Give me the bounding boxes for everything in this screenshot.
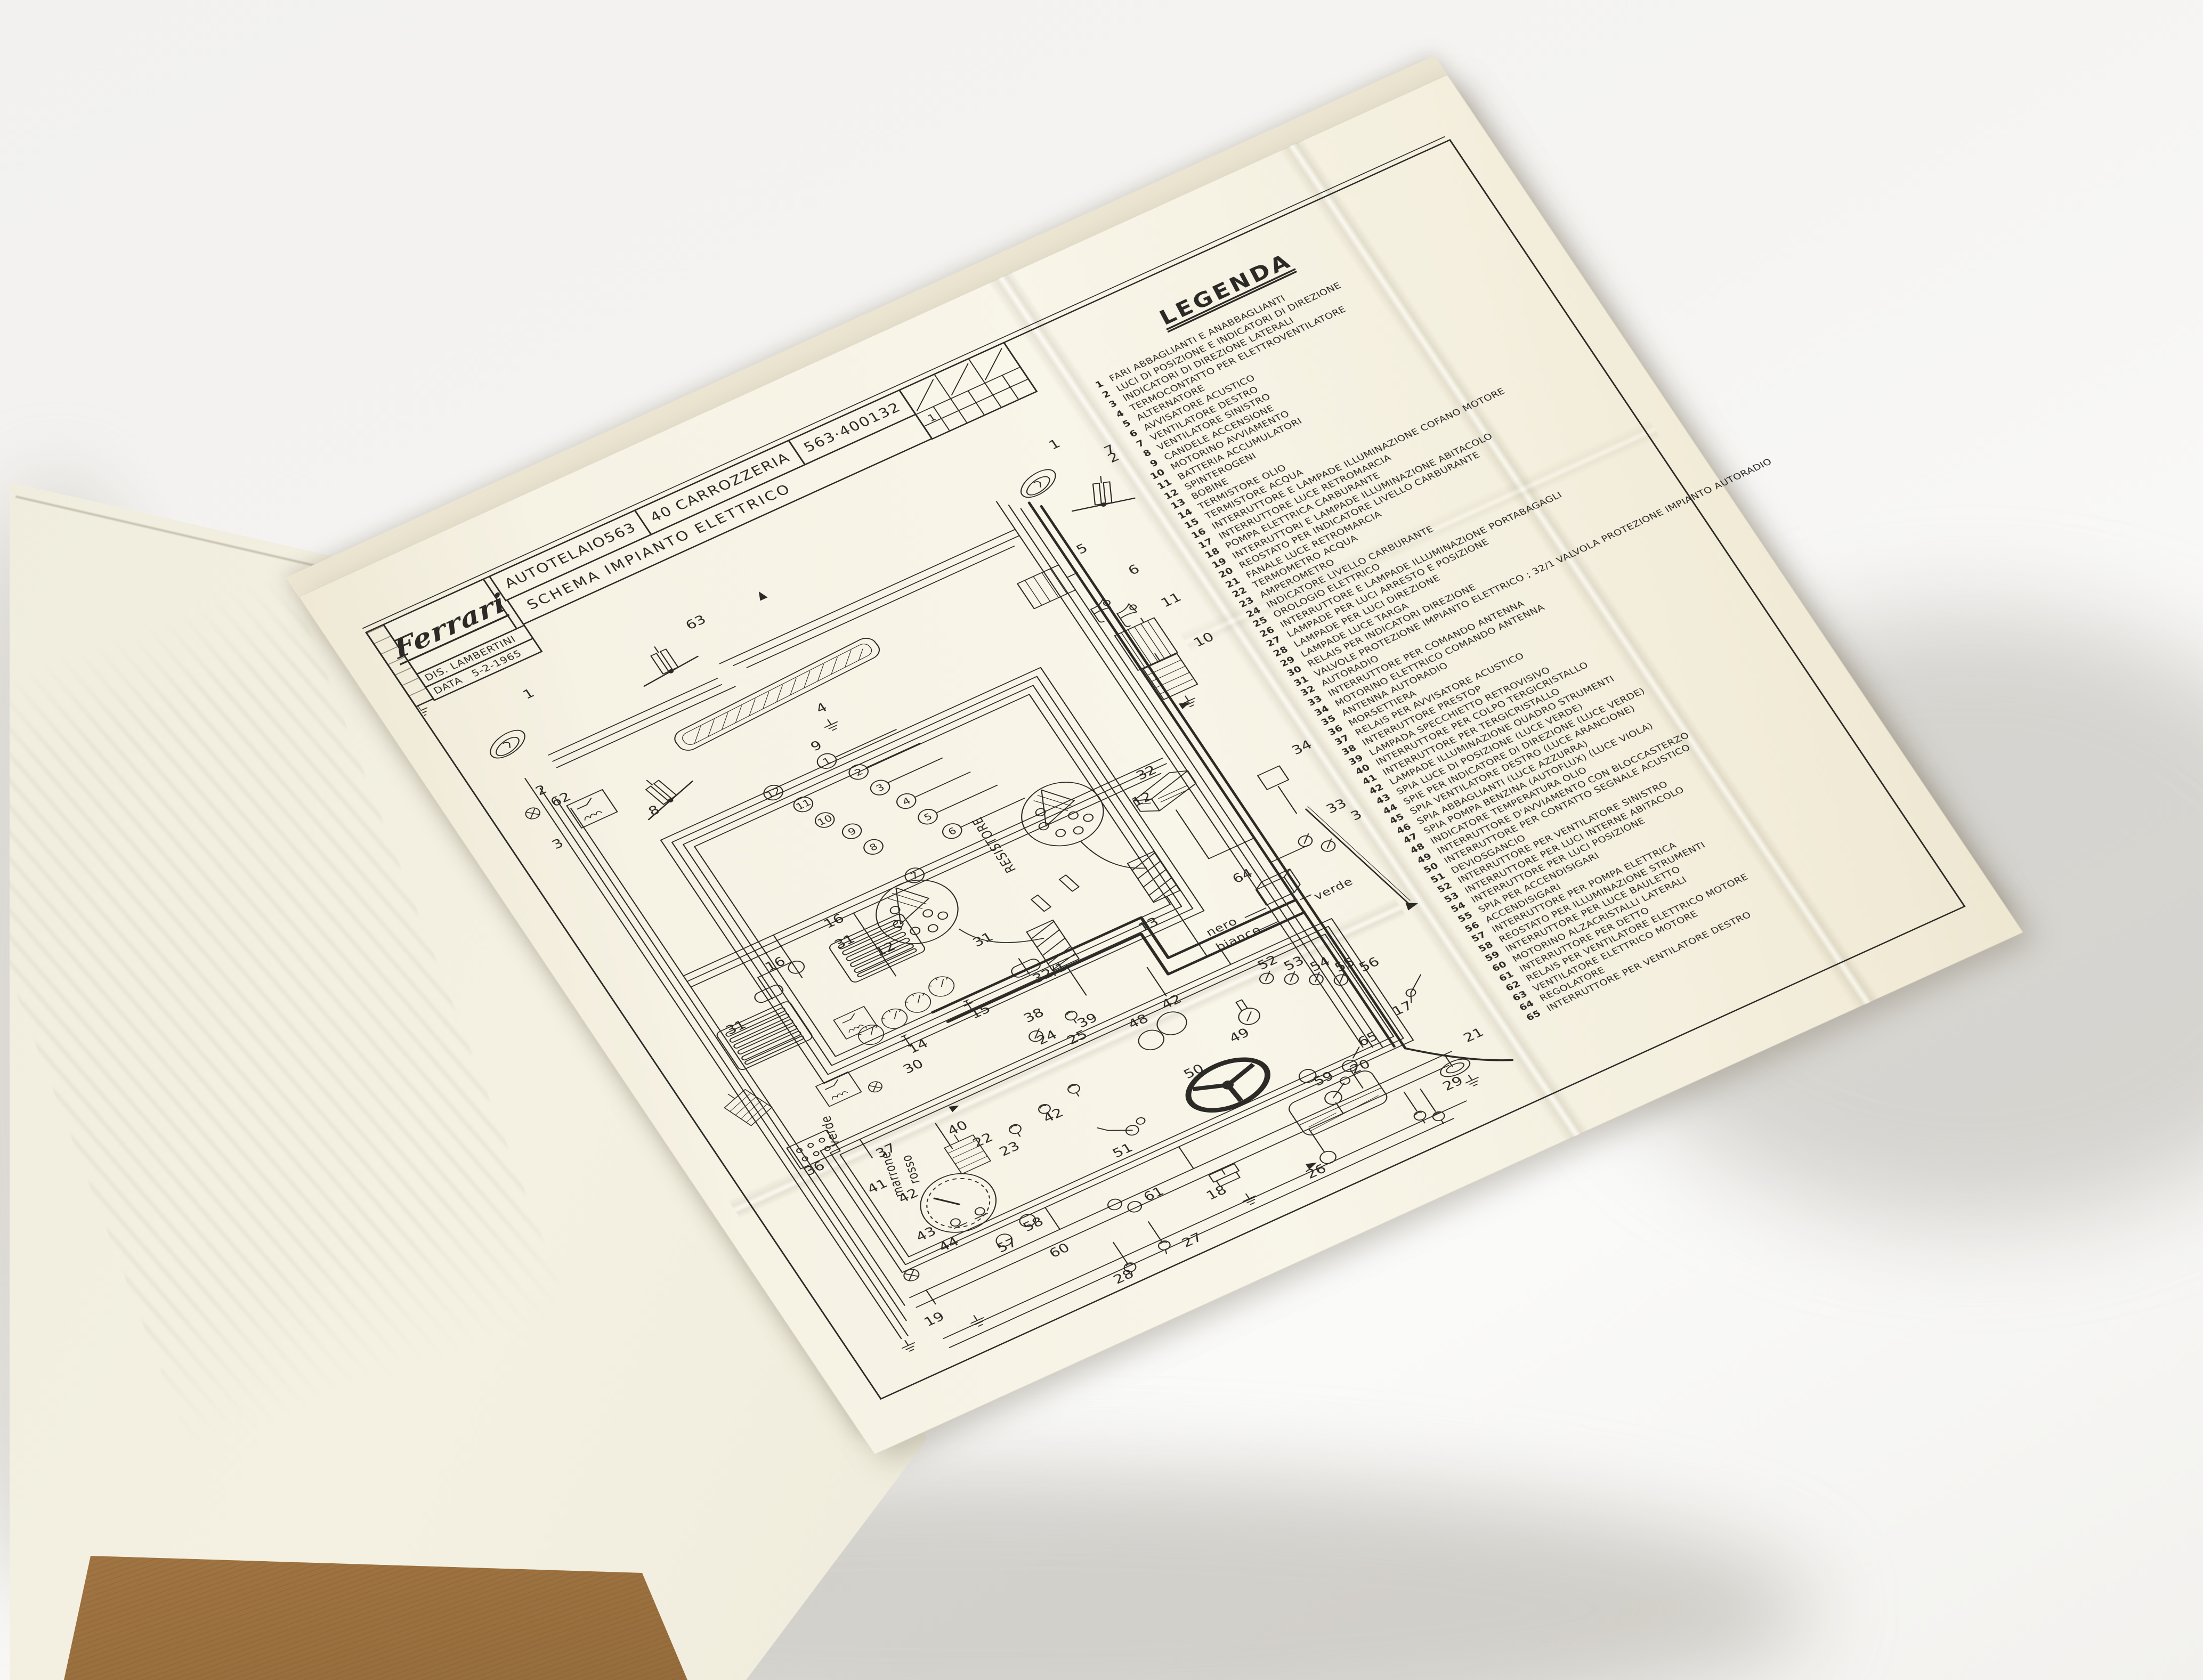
component-number: 49 <box>1226 1025 1252 1045</box>
component-number: 22 <box>970 1130 996 1150</box>
wire-label: RESISTORE <box>969 815 1019 875</box>
terminal-number: 2 <box>846 762 871 782</box>
terminal-number: 5 <box>915 807 940 827</box>
component-number: 9 <box>808 738 825 754</box>
component-number: 57 <box>994 1235 1020 1255</box>
component-number: 11 <box>1158 590 1184 610</box>
component-number: 53 <box>1281 953 1307 973</box>
terminal-number: 3 <box>868 777 893 798</box>
component-number: 51 <box>1109 1140 1136 1160</box>
component-number: 40 <box>945 1118 971 1138</box>
component-number: 23 <box>997 1139 1023 1159</box>
component-number: 6 <box>1125 562 1143 578</box>
component-number: 8 <box>645 802 662 819</box>
component-number: 48 <box>1125 1011 1151 1032</box>
component-number: 43 <box>913 1224 939 1244</box>
component-number: 20 <box>1347 1057 1373 1077</box>
terminal-number: 4 <box>894 791 919 811</box>
terminal-number: 6 <box>939 821 965 841</box>
component-number: 15 <box>967 1002 993 1022</box>
component-number: 65 <box>1355 1029 1381 1049</box>
svg-text:6: 6 <box>946 825 959 838</box>
component-number: 32/1 <box>1030 960 1070 986</box>
component-number: 16 <box>821 911 847 931</box>
wire-label: verde <box>1311 875 1356 903</box>
component-number: 4 <box>813 700 830 717</box>
component-number: 33 <box>1323 796 1349 816</box>
component-number: 34 <box>1289 737 1315 758</box>
component-number: 21 <box>1461 1025 1487 1045</box>
component-number: 19 <box>921 1309 947 1329</box>
component-number: 18 <box>1203 1183 1229 1203</box>
svg-text:4: 4 <box>900 796 913 808</box>
component-number: 42 <box>1040 1105 1066 1125</box>
component-number: 60 <box>1047 1240 1073 1261</box>
component-number: 62 <box>548 789 574 809</box>
terminal-number: 9 <box>839 821 864 841</box>
component-number: 64 <box>1229 866 1256 886</box>
component-number: 14 <box>905 1036 931 1057</box>
component-number: 16 <box>762 954 788 974</box>
terminal-number: 10 <box>812 810 837 830</box>
component-number: 54 <box>1307 954 1333 975</box>
component-number: 38 <box>1020 1005 1047 1026</box>
terminal-number: 8 <box>861 837 886 857</box>
svg-text:2: 2 <box>853 766 865 778</box>
component-number: 36 <box>801 1158 828 1179</box>
component-number: 44 <box>936 1235 962 1255</box>
component-number: 63 <box>683 612 709 632</box>
terminal-number: 11 <box>791 794 816 815</box>
component-number: 30 <box>900 1057 926 1077</box>
component-number: 1 <box>520 686 537 702</box>
component-number: 2 <box>533 782 550 799</box>
wire-label: verde <box>818 1114 844 1148</box>
component-number: 52 <box>1254 953 1281 973</box>
svg-text:1: 1 <box>821 755 833 767</box>
component-number: 1 <box>1046 436 1063 453</box>
svg-text:3: 3 <box>874 782 887 794</box>
component-number: 5 <box>1073 541 1090 557</box>
component-number: 31 <box>970 930 996 950</box>
svg-text:5: 5 <box>921 811 934 823</box>
component-number: 42 <box>1159 992 1185 1012</box>
svg-text:9: 9 <box>846 825 858 838</box>
svg-text:8: 8 <box>867 841 880 854</box>
photo-of-open-book: Ferrari DIS. LAMBERTINI DATA 5-2-1965 AU… <box>0 0 2203 1680</box>
component-number: 3 <box>549 836 566 853</box>
component-number: 10 <box>1191 630 1217 650</box>
component-number: 32 <box>1133 762 1160 783</box>
component-number: 39 <box>1074 1010 1100 1030</box>
component-number: 61 <box>1141 1184 1167 1204</box>
component-number: 12 <box>1129 789 1155 809</box>
component-number: 50 <box>1181 1061 1207 1082</box>
component-number: 56 <box>1356 954 1382 975</box>
